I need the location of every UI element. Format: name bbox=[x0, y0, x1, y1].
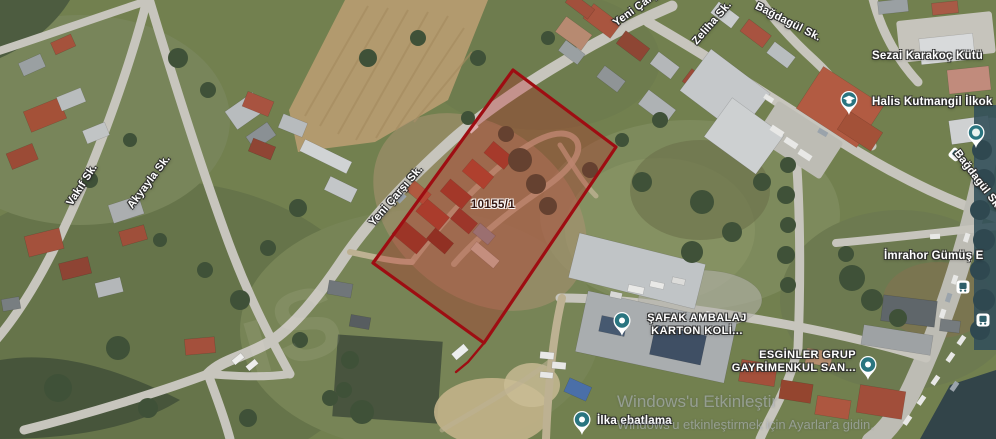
windows-activation-watermark-line1: Windows'u Etkinleştir bbox=[617, 392, 777, 412]
satellite-map-view[interactable]: ıS Vakıf Sk. Akyayla Sk. Yeni Çarşı Sk. … bbox=[0, 0, 996, 439]
transit-pin-icon[interactable] bbox=[965, 121, 987, 154]
safak-pin-icon[interactable] bbox=[611, 309, 633, 342]
poi-label-safak-line1: ŞAFAK AMBALAJ bbox=[636, 312, 758, 325]
windows-activation-watermark-line2: Windows'u etkinleştirmek için Ayarlar'a … bbox=[617, 417, 874, 432]
esginler-pin-icon[interactable] bbox=[857, 353, 879, 386]
poi-label-halis-kutmangil[interactable]: Halis Kutmangil İlkok bbox=[872, 96, 993, 108]
poi-label-sezai-karakoc[interactable]: Sezai Karakoç Kütü bbox=[872, 50, 983, 62]
poi-label-esginler-line1: ESGİNLER GRUP bbox=[732, 349, 856, 362]
poi-label-esginler-grup[interactable]: ESGİNLER GRUP GAYRİMENKUL SAN... bbox=[732, 349, 856, 375]
bus-stop-icon[interactable] bbox=[956, 280, 970, 299]
ilka-pin-icon[interactable] bbox=[571, 408, 593, 439]
school-pin-icon[interactable] bbox=[838, 88, 860, 121]
poi-label-safak-ambalaj[interactable]: ŞAFAK AMBALAJ KARTON KOLİ... bbox=[636, 312, 758, 338]
parcel-number-label: 10155/1 bbox=[471, 199, 515, 211]
poi-label-safak-line2: KARTON KOLİ... bbox=[636, 325, 758, 338]
poi-label-imrahor-gumus[interactable]: İmrahor Gümüş E bbox=[884, 250, 984, 262]
poi-label-esginler-line2: GAYRİMENKUL SAN... bbox=[732, 362, 856, 375]
bus-stop-icon[interactable] bbox=[976, 313, 990, 332]
